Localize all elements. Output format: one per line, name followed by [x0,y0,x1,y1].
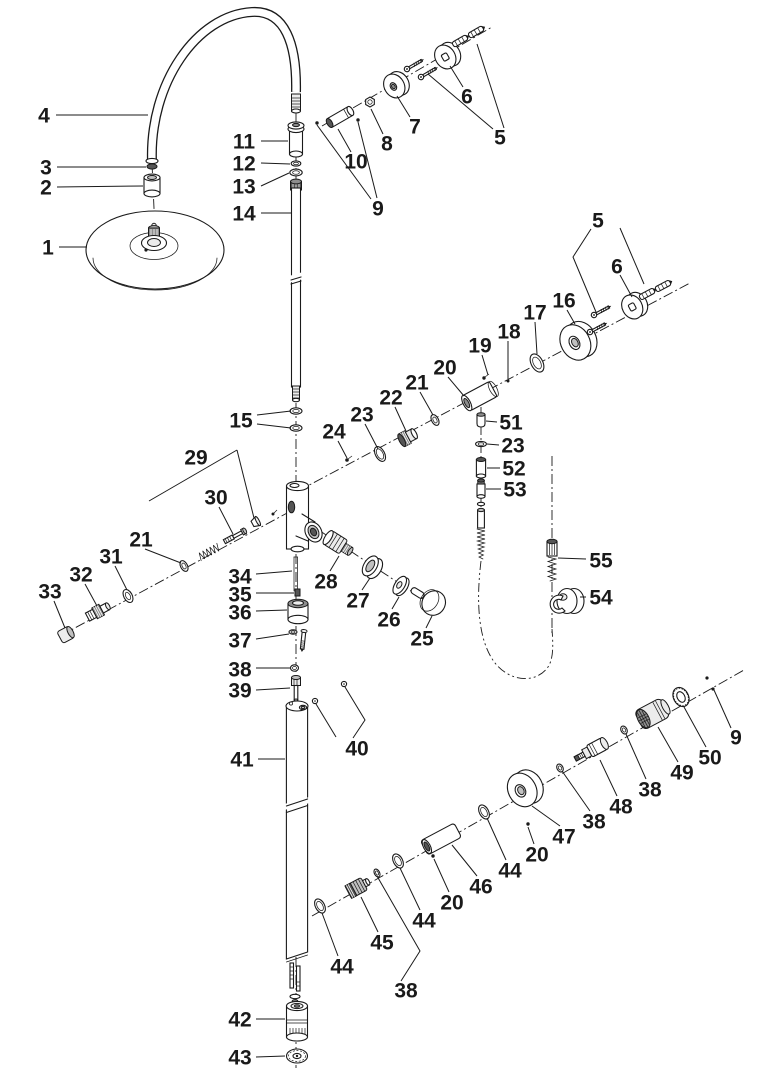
nipple-part-51 [477,413,485,427]
leader-line-part-44 [322,913,338,956]
connector-part-2 [144,174,160,197]
leader-line-part-13 [261,173,289,186]
leader-line-part-55 [558,558,586,559]
part-label-53: 53 [503,479,526,502]
ring-part-23 [476,441,487,446]
leader-line-part-44 [487,818,506,860]
part-label-19: 19 [468,335,491,358]
washer-part-12 [291,161,301,166]
part-label-17: 17 [523,302,546,325]
part-label-24: 24 [322,421,346,444]
part-label-42: 42 [228,1009,251,1032]
part-label-21: 21 [405,372,429,395]
leader-line-part-37 [256,634,289,639]
diagram-page: Shower column exploded parts diagram [0,0,764,1080]
leader-line-part-25 [426,616,432,628]
part-label-31: 31 [99,546,123,569]
o-ring-part-21 [178,559,189,572]
spring-part-29 [197,543,220,560]
upper-pipe-part-14 [289,179,303,402]
part-label-11: 11 [233,131,256,154]
leader-line-part-29 [237,450,254,518]
pin-part-18 [507,380,510,383]
cup-part-36 [288,599,308,623]
screw-part-30 [223,527,247,544]
o-ring-part-44 [390,852,405,870]
o-ring-part-38 [291,665,299,671]
leader-line-part-48 [600,760,617,796]
cap-part-33 [57,625,76,643]
leader-line-part-15 [257,424,291,428]
part-label-10: 10 [344,151,367,174]
leader-line-part-28 [330,556,339,571]
set-screw-part-9 [356,118,359,121]
leader-line-part-5 [620,228,644,284]
o-ring-part-23 [372,445,388,463]
washer [477,502,484,505]
o-ring-part-44 [312,897,327,915]
part-label-23: 23 [350,404,373,427]
leader-line-part-39 [256,688,290,690]
connector-part-11 [288,122,304,157]
screws-part-40 [312,681,346,703]
escutcheon-part-7 [379,68,413,102]
handle-knob-part-25 [405,579,450,620]
lower-column [285,681,347,1063]
screw-spring-part-55 [547,539,557,581]
leader-line-part-44 [400,868,420,910]
part-label-32: 32 [69,564,92,587]
part-label-29: 29 [184,447,207,470]
sleeve-part-20 [460,380,501,412]
part-labels: 4321111213141087965561617181920212223241… [38,44,742,1070]
part-label-5: 5 [592,210,604,233]
leader-line-part-7 [397,96,410,117]
leader-line-part-43 [256,1056,285,1057]
cap-part-43 [287,1049,308,1063]
part-label-55: 55 [589,550,613,573]
part-label-7: 7 [409,116,421,139]
part-label-22: 22 [379,387,402,410]
leader-line-part-34 [256,571,292,574]
leader-line-part-5 [573,229,596,312]
valve-part-48 [572,736,610,764]
part-label-8: 8 [381,133,393,156]
part-label-44: 44 [498,860,522,883]
part-label-2: 2 [40,177,52,200]
part-label-5: 5 [494,127,506,150]
part-label-18: 18 [497,321,521,344]
part-label-20: 20 [440,892,463,915]
center-axes [60,27,744,1068]
part-label-37: 37 [228,630,251,653]
pin-part-39 [292,676,301,701]
screw-part-5 [403,57,425,73]
leader-line-part-23 [487,444,499,445]
part-label-36: 36 [228,602,251,625]
cone-part-29 [250,516,261,528]
pin-part-20 [526,822,529,825]
leader-line-part-23 [365,424,378,449]
leader-line-part-45 [361,897,378,932]
flange-part-47 [502,765,549,812]
leader-line-part-40 [345,687,365,738]
leader-line-part-32 [85,584,97,606]
leader-line-part-49 [658,727,678,762]
valve-body [287,481,326,551]
exploded-diagram-canvas: Shower column exploded parts diagram [0,0,764,1080]
part-label-12: 12 [232,153,255,176]
cap-part-26 [390,574,412,598]
part-label-25: 25 [410,628,434,651]
column-tube-part-41 [286,707,307,959]
leader-line-part-30 [219,507,233,534]
leader-line-part-36 [256,610,287,611]
o-ring-part-38 [619,725,628,735]
part-label-44: 44 [330,956,354,979]
leader-line-part-47 [532,806,560,826]
part-label-15: 15 [229,410,253,433]
part-label-47: 47 [552,826,575,849]
spacer-part-10 [325,105,355,128]
leader-line-part-19 [482,355,488,375]
holder-part-54 [550,589,584,614]
part-label-51: 51 [499,412,523,435]
part-label-6: 6 [611,256,623,279]
flange-part-16 [554,316,603,366]
o-ring-part-13 [290,169,302,176]
part-label-1: 1 [42,237,54,260]
o-ring-part-31 [121,588,135,604]
hose-protection-spring [477,508,485,559]
connector-part-22 [396,427,419,448]
sleeve-part-46 [420,823,461,855]
hand-shower-holder [547,539,584,613]
leader-line-part-10 [338,129,351,152]
spray-cap-part-49 [634,696,673,730]
part-label-6: 6 [461,86,473,109]
adapter-part-32 [85,600,113,622]
part-label-26: 26 [377,609,400,632]
leader-line-part-27 [362,578,370,590]
part-label-41: 41 [230,749,254,772]
seal-part-3 [147,164,157,169]
part-label-20: 20 [433,357,456,380]
leader-line-part-40 [316,704,336,737]
ring-nut-part-27 [359,553,386,581]
bit-part-35 [295,589,300,596]
end-piece-part-42 [287,1001,308,1041]
set-screw-part-9 [705,676,708,679]
cartridge-part-28 [321,529,356,559]
part-label-27: 27 [346,590,369,613]
part-label-23: 23 [501,435,524,458]
part-label-48: 48 [609,796,633,819]
part-label-38: 38 [638,779,662,802]
leader-line-part-6 [450,66,463,87]
part-label-39: 39 [228,680,251,703]
leader-line-part-2 [57,186,143,187]
part-label-52: 52 [502,458,525,481]
set-screw-part-9 [315,121,318,124]
part-label-50: 50 [698,747,721,770]
part-label-4: 4 [38,105,50,128]
diverter-internals [288,557,308,701]
leader-line-part-17 [535,322,537,354]
wall-anchor-part-5 [655,279,674,293]
part-label-38: 38 [394,980,418,1003]
screw-part-5 [417,65,439,81]
leader-line-part-12 [261,163,290,164]
leader-line-part-8 [371,109,383,134]
nut-part-8 [364,96,377,108]
screw-part-37 [289,629,307,652]
leader-line-part-33 [54,601,65,628]
bottom-fittings [290,963,300,1002]
part-label-14: 14 [232,203,256,226]
leader-line-part-22 [395,407,406,431]
o-rings-part-15 [290,408,302,431]
part-label-38: 38 [582,811,606,834]
shower-head [86,164,224,290]
part-label-45: 45 [370,932,394,955]
connector-part-53 [477,479,485,498]
leader-line-part-15 [257,411,291,415]
part-label-30: 30 [204,487,227,510]
part-label-9: 9 [730,727,742,750]
part-label-38: 38 [228,659,252,682]
o-ring-part-21 [429,413,440,426]
leader-line-part-31 [115,566,127,590]
part-label-46: 46 [469,876,492,899]
part-label-20: 20 [525,844,548,867]
part-label-40: 40 [345,738,368,761]
leader-line-part-20 [528,827,534,844]
leader-line-part-38 [562,771,590,811]
part-label-9: 9 [372,198,384,221]
pin-part-20 [431,854,434,857]
wall-anchor-part-5 [639,287,658,301]
part-label-54: 54 [589,587,613,610]
leader-line-part-9 [714,690,731,728]
o-ring-part-38 [555,763,564,773]
leader-line-part-5 [477,44,504,128]
leader-line-part-38 [626,734,646,779]
part-label-13: 13 [232,176,255,199]
ring-part-17 [527,352,546,375]
part-label-33: 33 [38,581,61,604]
leader-line-part-20 [448,377,464,396]
part-label-44: 44 [412,910,436,933]
wall-bracket-upper [315,24,486,128]
connector-part-52 [476,458,485,479]
leader-line-part-21 [420,392,433,415]
leader-line-part-20 [434,859,449,892]
o-ring-part-44 [476,803,491,821]
ring-part-50 [670,685,693,710]
leader-line-part-46 [452,845,477,876]
part-label-49: 49 [670,762,693,785]
leader-line-part-50 [684,707,706,747]
part-label-21: 21 [129,529,153,552]
part-label-16: 16 [552,290,575,313]
leader-line-part-51 [486,421,497,422]
shower-hose [479,561,553,679]
part-label-43: 43 [228,1047,251,1070]
leader-line-part-26 [392,597,399,609]
wall-anchor-part-5 [452,33,471,47]
part-label-28: 28 [314,571,338,594]
